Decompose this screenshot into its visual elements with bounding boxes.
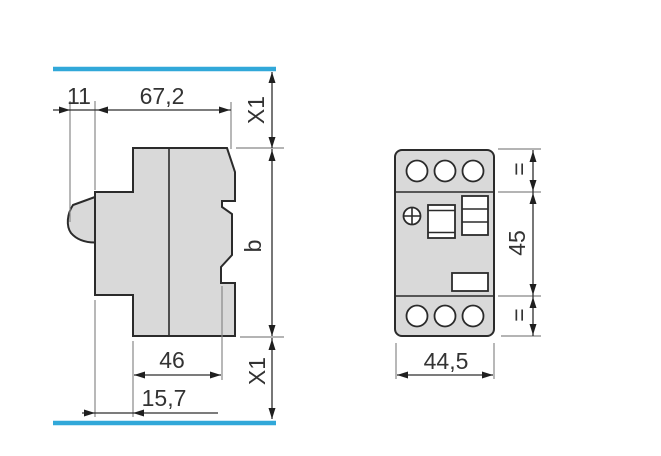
arrowhead-up-icon [269,72,276,83]
terminal-top-1 [407,161,428,182]
arrowhead-up-icon [530,297,537,308]
setting-dial-window [428,205,455,238]
side-view-lever [68,197,95,243]
dim-front-width: 44,5 [396,343,494,379]
dimension-drawing: 11 67,2 46 15,7 X1 b X1 [0,0,661,456]
dim-label-mounting-height: 45 [504,230,530,256]
dim-label-equal-bottom: = [506,308,532,321]
arrowhead-left-icon [134,372,145,379]
button-block [462,196,488,235]
arrowhead-left-icon [97,107,108,114]
drawing-svg: 11 67,2 46 15,7 X1 b X1 [0,0,661,456]
arrowhead-right-icon [219,107,230,114]
terminal-top-2 [435,161,456,182]
dim-label-clearance-bottom: X1 [244,357,270,385]
adjustment-screw-icon [404,208,421,225]
dim-label-width: 44,5 [424,348,469,374]
arrowhead-up-icon [530,151,537,162]
terminal-bottom-2 [435,306,456,327]
arrowhead-up-icon [269,150,276,161]
front-view [395,150,494,336]
arrowhead-up-icon [269,339,276,350]
dim-vertical-front: = 45 = [498,149,541,336]
dim-label-body-width: 46 [159,347,185,373]
arrowhead-down-icon [530,324,537,335]
label-plate [452,273,488,291]
terminal-top-3 [463,161,484,182]
dim-label-depth: 67,2 [140,83,185,109]
dim-label-height: b [240,240,266,253]
arrowhead-down-icon [269,325,276,336]
dim-label-equal-top: = [506,162,532,175]
dim-label-front-protrusion: 11 [67,83,91,109]
dim-label-clearance-top: X1 [243,96,269,124]
terminal-bottom-1 [407,306,428,327]
arrowhead-down-icon [530,180,537,191]
arrowhead-down-icon [530,284,537,295]
arrowhead-down-icon [269,408,276,419]
dim-label-rear-offset: 15,7 [142,385,187,411]
button-block-frame [462,196,488,235]
arrowhead-up-icon [530,193,537,204]
dim-vertical-side: X1 b X1 [236,72,284,419]
terminal-bottom-3 [463,306,484,327]
arrowhead-left-icon [397,372,408,379]
arrowhead-right-icon [210,372,221,379]
side-view-body [95,148,235,336]
side-view [68,148,235,336]
arrowhead-right-icon [84,410,95,417]
arrowhead-down-icon [269,137,276,148]
arrowhead-right-icon [482,372,493,379]
